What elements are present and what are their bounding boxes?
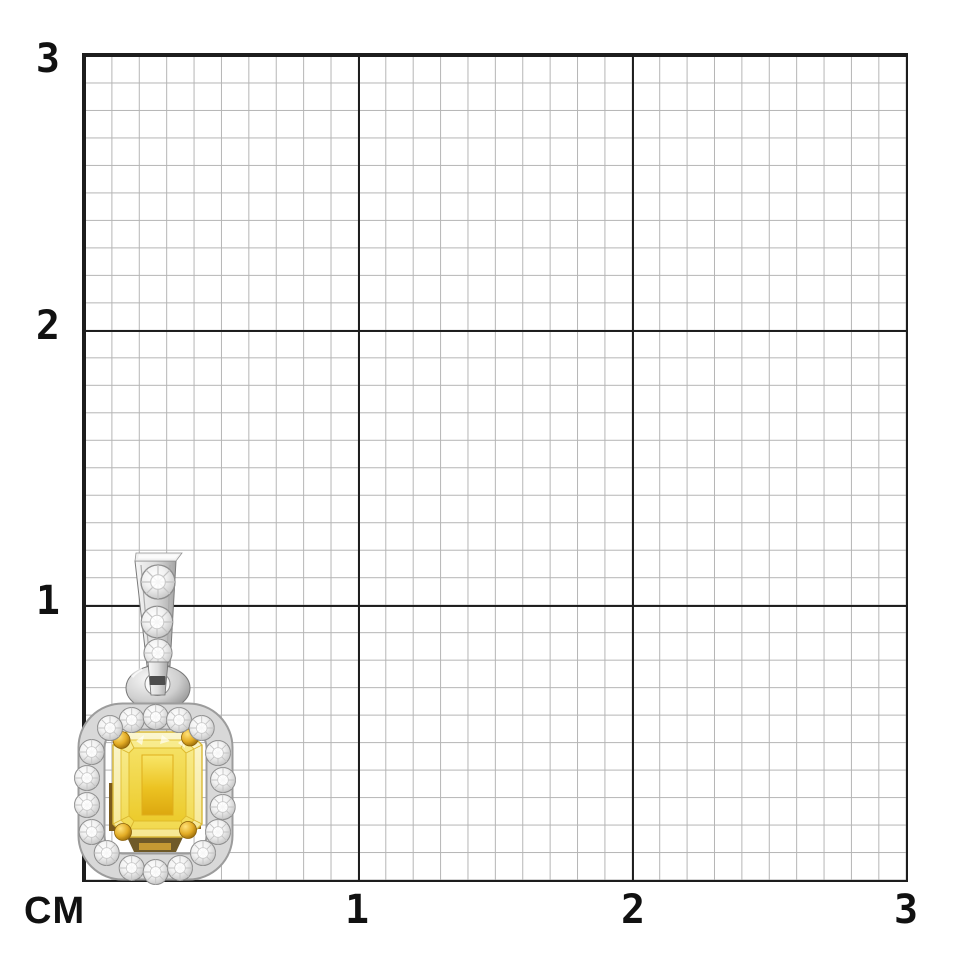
y-axis-label-3: 3 [20, 39, 60, 79]
pendant-photo [70, 545, 240, 885]
x-axis-label-2: 2 [613, 890, 653, 930]
bail-tip-shadow [150, 676, 166, 685]
y-axis-label-1: 1 [20, 581, 60, 621]
pendant-head [75, 705, 236, 885]
x-axis-label-1: 1 [337, 890, 377, 930]
unit-label-cm: CM [24, 892, 85, 930]
x-axis-label-3: 3 [886, 890, 926, 930]
bail-diamonds [141, 565, 175, 667]
bail-cap-highlight [138, 555, 179, 559]
y-axis-label-2: 2 [20, 306, 60, 346]
pendant-bail [135, 553, 182, 667]
measurement-board: 3 2 1 CM 1 2 3 [0, 0, 970, 970]
